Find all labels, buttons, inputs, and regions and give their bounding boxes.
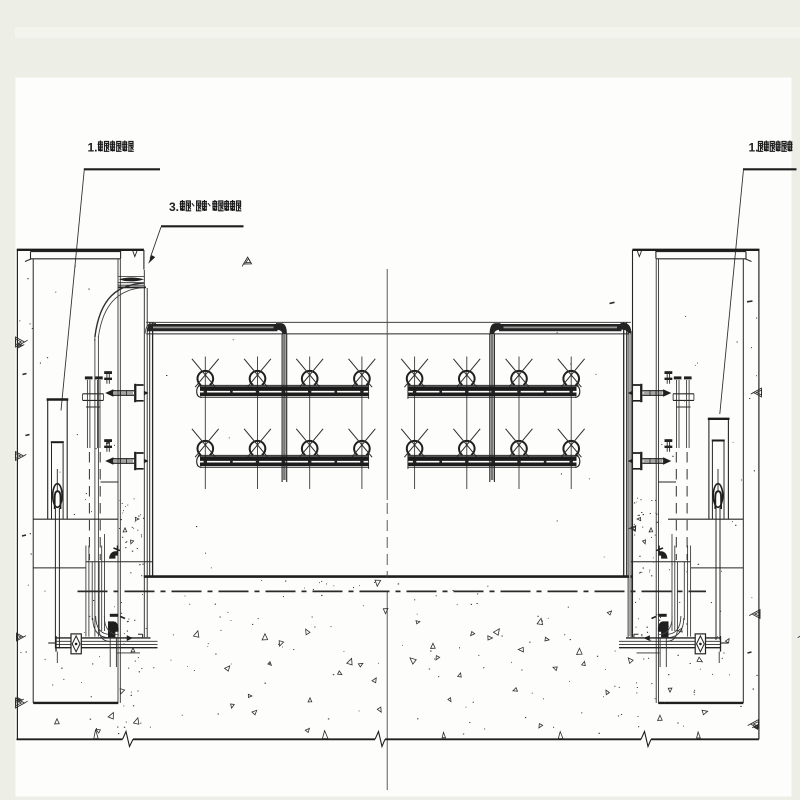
svg-text:3.: 3. [169, 200, 179, 214]
svg-text:1.: 1. [88, 141, 98, 155]
svg-text:1.: 1. [749, 141, 759, 155]
